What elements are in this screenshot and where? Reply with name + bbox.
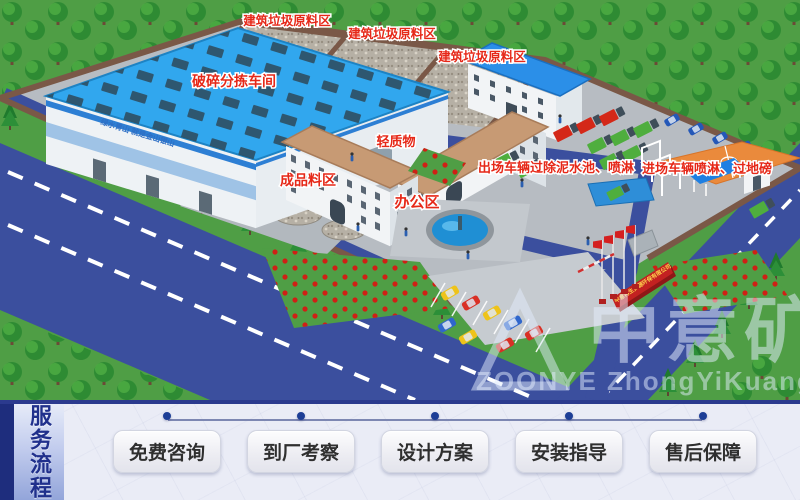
label-exit-wash: 出场车辆过除泥水池、喷淋 — [478, 160, 634, 175]
step-node-icon — [297, 412, 305, 420]
bar-accent-strip — [0, 404, 14, 500]
service-process-title: 服务流程 — [14, 404, 64, 500]
label-entry-wash: 进场车辆喷淋、过地磅 — [642, 161, 772, 176]
step-after-sales-support: 售后保障 — [636, 409, 770, 497]
watermark-cn: 中意矿机 — [588, 292, 800, 372]
step-node-icon — [565, 412, 573, 420]
step-button-design-plan[interactable]: 设计方案 — [381, 430, 489, 473]
watermark-en: ZOONYE ZhongYiKuangji — [476, 366, 800, 396]
step-button-free-consultation[interactable]: 免费咨询 — [113, 430, 221, 473]
step-button-installation-guidance[interactable]: 安装指导 — [515, 430, 623, 473]
label-office-area: 办公区 — [394, 193, 439, 211]
step-factory-visit: 到厂考察 — [234, 409, 368, 497]
label-raw-area-2: 建筑垃圾原料区 — [348, 26, 436, 41]
step-node-icon — [163, 412, 171, 420]
step-node-icon — [431, 412, 439, 420]
service-steps: 免费咨询 到厂考察 设计方案 安装指导 售后保障 — [100, 409, 770, 497]
label-light-material: 轻质物 — [376, 134, 415, 149]
step-design-plan: 设计方案 — [368, 409, 502, 497]
factory-3d-scene: 绿水青山 就是金山银山 — [0, 0, 800, 400]
service-process-bar: 服务流程 免费咨询 到厂考察 设计方案 安装指导 售后保障 — [0, 400, 800, 500]
step-free-consultation: 免费咨询 — [100, 409, 234, 497]
step-node-icon — [699, 412, 707, 420]
step-button-after-sales-support[interactable]: 售后保障 — [649, 430, 757, 473]
step-button-factory-visit[interactable]: 到厂考察 — [247, 430, 355, 473]
step-installation-guidance: 安装指导 — [502, 409, 636, 497]
label-crushing-workshop: 破碎分拣车间 — [192, 73, 276, 89]
plant-3d-rendering: 绿水青山 就是金山银山 — [0, 0, 800, 400]
label-raw-area-3: 建筑垃圾原料区 — [438, 49, 526, 64]
page: 绿水青山 就是金山银山 — [0, 0, 800, 500]
label-raw-area-1: 建筑垃圾原料区 — [243, 13, 331, 28]
label-finished-area: 成品料区 — [280, 172, 336, 188]
